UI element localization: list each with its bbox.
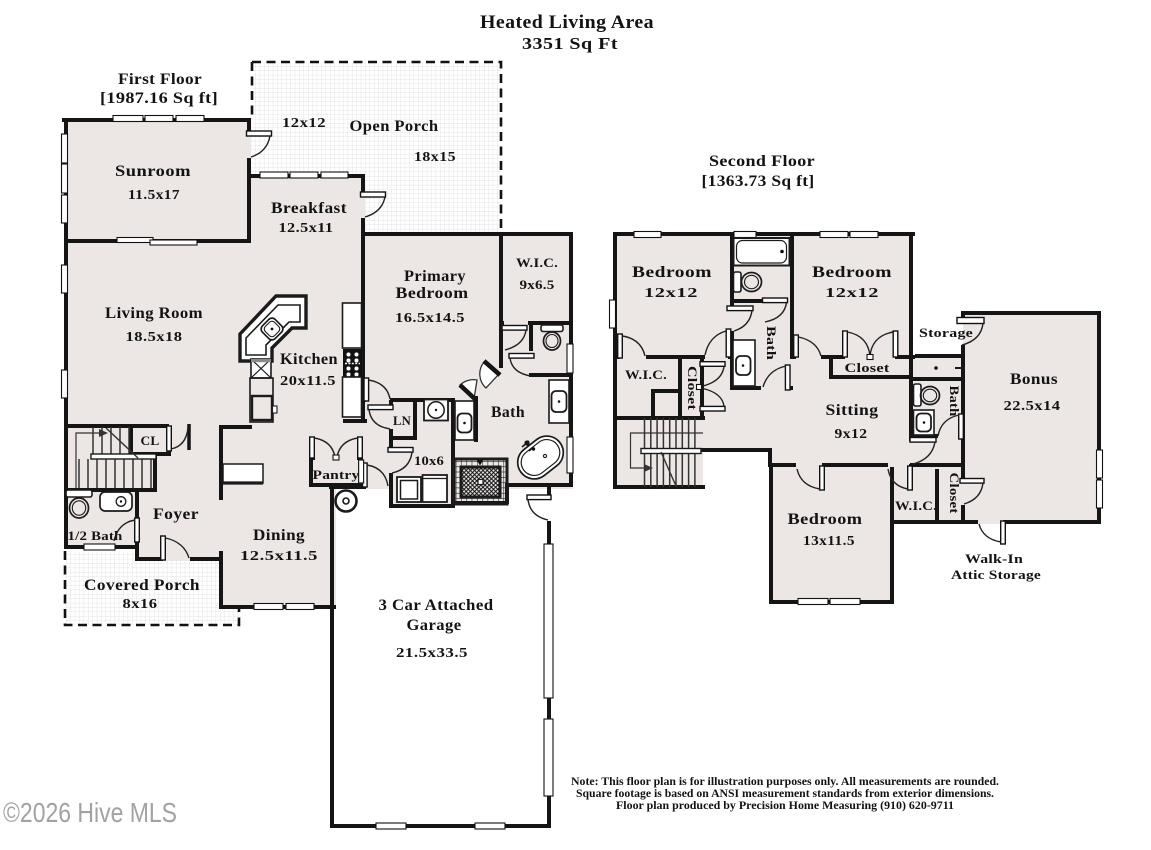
svg-text:Square footage is based on ANS: Square footage is based on ANSI measurem… [576, 788, 994, 800]
svg-text:9x6.5: 9x6.5 [520, 277, 555, 292]
svg-text:Garage: Garage [407, 617, 462, 634]
svg-text:Walk-In: Walk-In [965, 551, 1024, 566]
svg-text:Second Floor: Second Floor [709, 153, 815, 170]
svg-text:Closet: Closet [685, 366, 700, 411]
svg-text:Closet: Closet [845, 360, 891, 375]
svg-text:12.5x11: 12.5x11 [279, 220, 334, 235]
svg-text:8x16: 8x16 [123, 596, 158, 611]
svg-text:Breakfast: Breakfast [271, 200, 347, 217]
svg-text:CL: CL [141, 433, 160, 448]
svg-text:W.I.C.: W.I.C. [516, 255, 558, 270]
svg-text:3351 Sq Ft: 3351 Sq Ft [522, 34, 618, 53]
svg-text:Storage: Storage [919, 325, 973, 340]
svg-text:Bath: Bath [764, 326, 779, 361]
svg-text:1/2 Bath: 1/2 Bath [68, 528, 124, 543]
svg-text:16.5x14.5: 16.5x14.5 [395, 310, 465, 325]
svg-text:3 Car Attached: 3 Car Attached [379, 597, 494, 614]
svg-text:Covered Porch: Covered Porch [84, 577, 200, 594]
svg-text:LN: LN [393, 413, 411, 428]
svg-text:Kitchen: Kitchen [280, 351, 338, 368]
svg-text:Primary: Primary [404, 268, 466, 285]
svg-text:18x15: 18x15 [414, 149, 456, 164]
svg-text:Pantry: Pantry [313, 467, 360, 482]
svg-text:Living Room: Living Room [105, 305, 203, 322]
svg-text:First Floor: First Floor [118, 71, 202, 88]
svg-text:18.5x18: 18.5x18 [126, 329, 183, 344]
svg-text:Bedroom: Bedroom [396, 285, 469, 302]
svg-text:20x11.5: 20x11.5 [280, 373, 336, 388]
svg-text:9x12: 9x12 [835, 426, 868, 441]
svg-text:Foyer: Foyer [153, 506, 199, 523]
svg-text:Floor plan produced by Precisi: Floor plan produced by Precision Home Me… [616, 800, 954, 812]
svg-text:Bath: Bath [947, 386, 962, 418]
svg-text:Note: This floor plan is for i: Note: This floor plan is for illustratio… [571, 776, 999, 788]
svg-text:Sitting: Sitting [826, 402, 879, 419]
svg-text:W.I.C.: W.I.C. [895, 498, 937, 513]
svg-text:22.5x14: 22.5x14 [1004, 398, 1061, 413]
svg-text:Bedroom: Bedroom [788, 511, 863, 528]
svg-text:Closet: Closet [947, 473, 962, 515]
svg-text:Dining: Dining [253, 527, 305, 544]
svg-text:Bonus: Bonus [1010, 371, 1058, 388]
svg-text:Bedroom: Bedroom [632, 264, 712, 281]
svg-text:12.5x11.5: 12.5x11.5 [240, 548, 318, 563]
svg-text:12x12: 12x12 [282, 115, 326, 130]
svg-text:W.I.C.: W.I.C. [625, 367, 667, 382]
svg-text:12x12: 12x12 [644, 285, 698, 300]
svg-text:21.5x33.5: 21.5x33.5 [396, 645, 468, 660]
svg-text:Bedroom: Bedroom [812, 264, 892, 281]
svg-text:Attic Storage: Attic Storage [951, 567, 1041, 582]
svg-text:©2026 Hive MLS: ©2026 Hive MLS [3, 797, 177, 828]
svg-text:10x6: 10x6 [414, 453, 444, 468]
svg-text:[1363.73 Sq ft]: [1363.73 Sq ft] [702, 173, 815, 190]
svg-text:Open Porch: Open Porch [350, 118, 439, 135]
svg-text:13x11.5: 13x11.5 [803, 533, 855, 548]
svg-text:Sunroom: Sunroom [115, 163, 191, 180]
svg-text:Heated Living Area: Heated Living Area [480, 12, 654, 33]
svg-text:11.5x17: 11.5x17 [128, 187, 180, 202]
svg-text:12x12: 12x12 [825, 285, 879, 300]
svg-text:[1987.16 Sq ft]: [1987.16 Sq ft] [100, 90, 218, 107]
svg-text:Bath: Bath [491, 404, 525, 421]
